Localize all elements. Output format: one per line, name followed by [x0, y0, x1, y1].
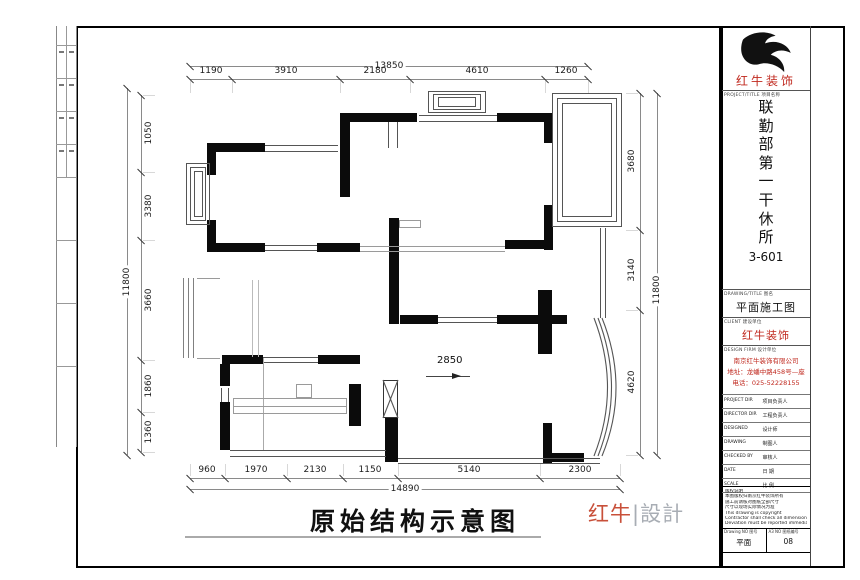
dim-extension: [620, 464, 621, 476]
dim-label: 1190: [200, 66, 223, 76]
brand-signature: 红牛|設計: [588, 498, 684, 528]
row-label-en: DIRECTOR DIR: [724, 412, 757, 417]
dim-extension: [143, 360, 155, 361]
title-block-footer: Drawing NO 图号平面A3 NO 图纸编号08: [722, 528, 810, 553]
title-block-table: PROJECT DIR项目负责人DIRECTOR DIR工程负责人DESIGNE…: [722, 394, 810, 493]
row-label-en: DRAWING: [724, 440, 746, 445]
row-label-cn: 设计师: [762, 426, 777, 433]
row-label-cn: 审核人: [762, 454, 777, 461]
dim-label: 4610: [466, 66, 489, 76]
dim-extension: [626, 230, 638, 231]
dim-label: 960: [198, 465, 215, 475]
firm-name: 南京红牛装饰有限公司: [722, 355, 810, 365]
row-label-en: PROJECT DIR: [724, 398, 753, 403]
row-label-cn: 工程负责人: [762, 412, 787, 419]
drawing-title: 平面施工图: [722, 299, 810, 315]
title-block-row: DESIGNED设计师: [722, 423, 810, 437]
dim-label: 2180: [364, 66, 387, 76]
dim-label: 4620: [627, 371, 637, 394]
brand-signature-red: 红牛: [588, 502, 632, 526]
dim-label: 11800: [652, 274, 662, 307]
firm-caption: DESIGN FIRM 设计单位: [724, 347, 776, 353]
dim-label: 3380: [144, 195, 154, 218]
rednull-logo-icon: [737, 30, 795, 72]
dim-extension: [626, 310, 638, 311]
dim-label: 1050: [144, 122, 154, 145]
row-label-cn: 项目负责人: [762, 398, 787, 405]
footer-cell: A3 NO 图纸编号08: [766, 528, 811, 552]
dim-label: 1970: [245, 465, 268, 475]
dim-extension: [343, 464, 344, 476]
row-label-cn: 日 期: [762, 468, 774, 475]
dim-line: [190, 79, 588, 80]
dim-extension: [143, 172, 155, 173]
project-number: 3-601: [722, 250, 810, 264]
dim-label: 1860: [144, 375, 154, 398]
dim-extension: [626, 93, 638, 94]
client-caption: CLIENT 建设单位: [724, 319, 762, 325]
dim-label: 2300: [569, 465, 592, 475]
row-label-en: DATE: [724, 468, 736, 473]
footer-value: 平面: [722, 537, 766, 548]
title-block-row: DRAWING制图人: [722, 437, 810, 451]
title-block-row: DATE日 期: [722, 465, 810, 479]
dim-label: 3680: [627, 150, 637, 173]
title-underline: [185, 536, 541, 538]
dim-label: 1150: [359, 465, 382, 475]
dim-line: [640, 93, 641, 455]
dim-label: 2130: [304, 465, 327, 475]
footer-caption: Drawing NO 图号: [724, 529, 757, 535]
dim-extension: [190, 81, 191, 93]
drawing-sheet: 2850 13850119039102180461012609601970213…: [0, 0, 860, 580]
dim-extension: [540, 464, 541, 476]
dim-label: 14890: [389, 484, 422, 494]
dim-extension: [143, 95, 155, 96]
brand-signature-gray: |設計: [632, 502, 684, 526]
dim-extension: [588, 81, 589, 93]
dim-line: [141, 95, 142, 452]
firm-phone: 电话：025-52228155: [722, 377, 810, 387]
footer-cell: Drawing NO 图号平面: [722, 528, 766, 552]
dim-extension: [143, 240, 155, 241]
client-name: 红牛装饰: [722, 327, 810, 343]
dim-extension: [340, 81, 341, 93]
brand-name: 红牛装饰: [722, 72, 810, 89]
row-label-en: CHECKED BY: [724, 454, 753, 459]
dim-label: 1260: [555, 66, 578, 76]
dim-label: 5140: [458, 465, 481, 475]
dim-label: 11800: [122, 266, 132, 299]
dim-label: 3140: [627, 259, 637, 282]
footer-caption: A3 NO 图纸编号: [769, 529, 799, 535]
firm-address: 地址：龙蟠中路458号—座: [722, 366, 810, 376]
dim-line: [190, 478, 620, 479]
dim-extension: [626, 455, 638, 456]
dim-extension: [190, 464, 191, 476]
dim-extension: [410, 81, 411, 93]
dim-extension: [545, 81, 546, 93]
footer-value: 08: [767, 537, 811, 546]
dim-extension: [225, 464, 226, 476]
dim-label: 3910: [275, 66, 298, 76]
title-block-row: PROJECT DIR项目负责人: [722, 395, 810, 409]
title-block-notes: 版权说明本图版权归南京红牛装饰所有施工前请核对图纸全部尺寸尺寸以现场实际情况为准…: [722, 486, 810, 529]
plan-annotation: 2850: [437, 355, 462, 366]
row-label-en: DESIGNED: [724, 426, 748, 431]
title-block-row: DIRECTOR DIR工程负责人: [722, 409, 810, 423]
sheet-title: 原始结构示意图: [310, 502, 520, 538]
drawing-title-caption: DRAWING/TITLE 图名: [724, 291, 773, 297]
leader-arrow-icon: [452, 373, 461, 379]
dim-extension: [143, 412, 155, 413]
note-line: Deviation must be reported immediately t…: [725, 521, 807, 526]
dim-extension: [287, 464, 288, 476]
dim-extension: [232, 81, 233, 93]
dim-label: 3660: [144, 289, 154, 312]
project-name: 联勤部第一干休所: [757, 98, 775, 247]
dim-extension: [398, 464, 399, 476]
leader-line: [426, 376, 470, 377]
dim-label: 1360: [144, 421, 154, 444]
title-block-row: CHECKED BY审核人: [722, 451, 810, 465]
brand-caption: PROJECT/TITLE 项目名称: [724, 92, 780, 98]
dim-extension: [143, 452, 155, 453]
row-label-cn: 制图人: [762, 440, 777, 447]
